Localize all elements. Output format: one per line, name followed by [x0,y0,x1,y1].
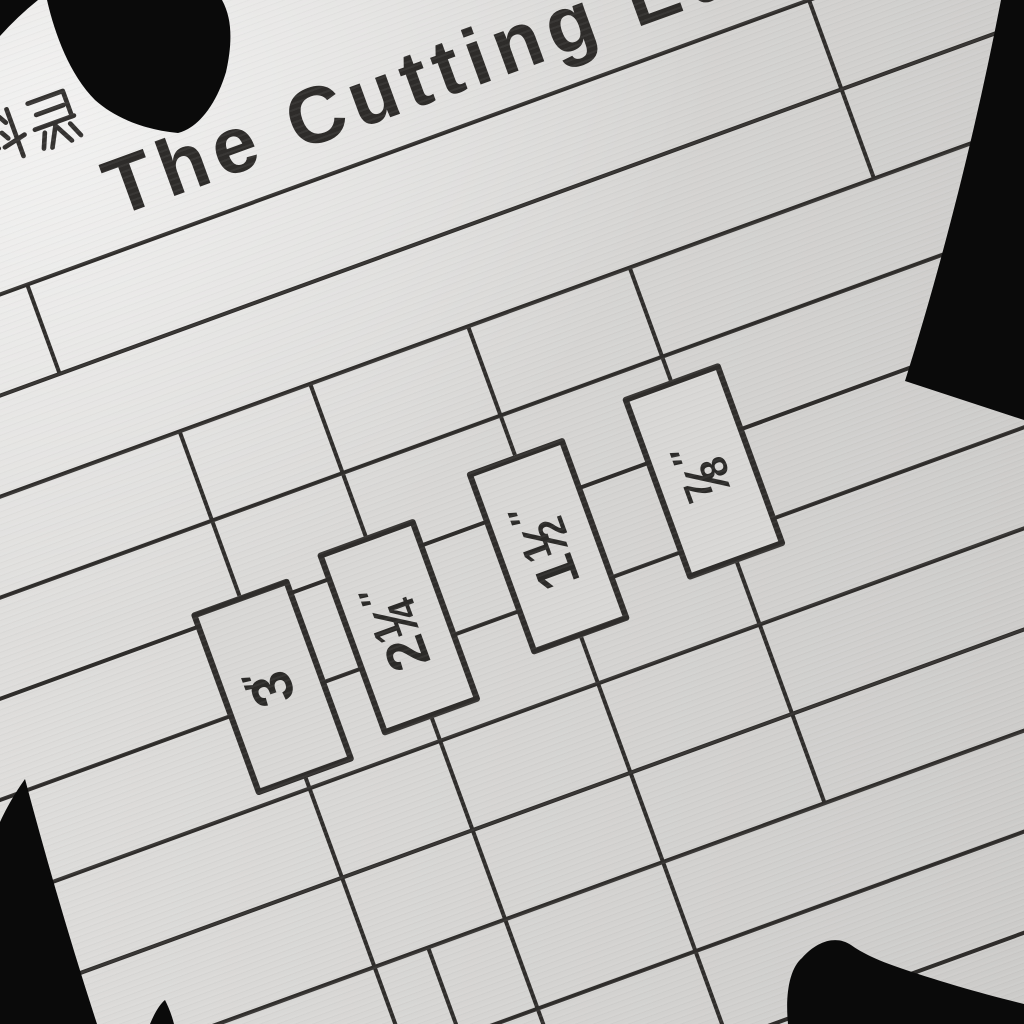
cutout-bottom-tip [150,1000,174,1024]
cutout-bottom-left [0,779,97,1024]
cutout-top-right [905,0,1024,420]
cutout-bottom-right [787,940,1024,1024]
edge-cutouts [0,0,1024,1024]
cutout-top-left-corner [0,0,38,36]
cutout-top-scallop [47,0,230,133]
photo-of-cutting-template: The Cutting Edge 3″ 21⁄4″ 11⁄2″ 7⁄8″ [0,0,1024,1024]
